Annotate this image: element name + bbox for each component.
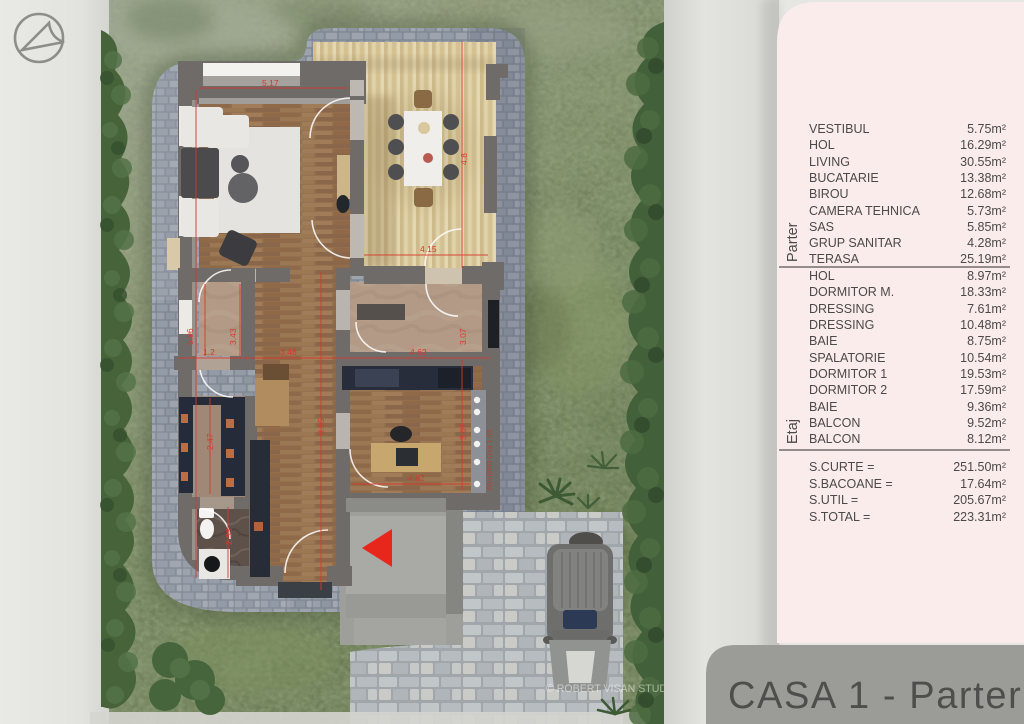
svg-text:5.73m²: 5.73m² [967, 204, 1006, 218]
svg-text:3.07: 3.07 [458, 423, 468, 440]
svg-text:S.TOTAL =: S.TOTAL = [809, 510, 870, 524]
svg-text:DORMITOR 1: DORMITOR 1 [809, 367, 887, 381]
svg-text:S.BACOANE =: S.BACOANE = [809, 477, 893, 491]
svg-text:5.96: 5.96 [185, 328, 195, 345]
svg-text:SPALATORIE: SPALATORIE [809, 351, 885, 365]
svg-text:Parter: Parter [785, 222, 801, 262]
svg-text:Etaj: Etaj [785, 419, 801, 444]
svg-text:19.53m²: 19.53m² [960, 367, 1006, 381]
svg-text:BUCATARIE: BUCATARIE [809, 171, 879, 185]
svg-text:251.50m²: 251.50m² [953, 460, 1006, 474]
svg-text:GRUP SANITAR: GRUP SANITAR [809, 236, 902, 250]
svg-text:RV+0000 O+a 1:99: RV+0000 O+a 1:99 [487, 430, 494, 490]
svg-text:10.54m²: 10.54m² [960, 351, 1006, 365]
svg-text:12.68m²: 12.68m² [960, 187, 1006, 201]
svg-text:4.62: 4.62 [410, 347, 427, 357]
svg-text:17.64m²: 17.64m² [960, 477, 1006, 491]
svg-text:1.2: 1.2 [203, 347, 215, 357]
svg-text:DRESSING: DRESSING [809, 302, 874, 316]
svg-text:S.CURTE =: S.CURTE = [809, 460, 874, 474]
svg-text:LIVING: LIVING [809, 155, 850, 169]
svg-text:5.17: 5.17 [262, 78, 279, 88]
svg-text:BAIE: BAIE [809, 400, 838, 414]
svg-text:205.67m²: 205.67m² [953, 493, 1006, 507]
svg-text:8.75m²: 8.75m² [967, 334, 1006, 348]
svg-text:9.36m²: 9.36m² [967, 400, 1006, 414]
svg-text:VESTIBUL: VESTIBUL [809, 122, 869, 136]
svg-text:DORMITOR 2: DORMITOR 2 [809, 383, 887, 397]
svg-text:3.43: 3.43 [228, 328, 238, 345]
svg-text:30.55m²: 30.55m² [960, 155, 1006, 169]
svg-text:18.33m²: 18.33m² [960, 285, 1006, 299]
svg-text:5.85m²: 5.85m² [967, 220, 1006, 234]
svg-text:2.47: 2.47 [205, 433, 215, 450]
svg-text:3.46: 3.46 [280, 347, 297, 357]
svg-text:4.62: 4.62 [408, 473, 425, 483]
svg-text:17.59m²: 17.59m² [960, 383, 1006, 397]
svg-text:8.12m²: 8.12m² [967, 432, 1006, 446]
svg-text:3.07: 3.07 [458, 328, 468, 345]
svg-text:CAMERA TEHNICA: CAMERA TEHNICA [809, 204, 921, 218]
svg-text:BIROU: BIROU [809, 187, 849, 201]
svg-text:13.38m²: 13.38m² [960, 171, 1006, 185]
svg-text:16.29m²: 16.29m² [960, 138, 1006, 152]
svg-text:223.31m²: 223.31m² [953, 510, 1006, 524]
svg-text:4.15: 4.15 [420, 244, 437, 254]
svg-text:BALCON: BALCON [809, 416, 860, 430]
svg-text:HOL: HOL [809, 138, 835, 152]
svg-text:BAIE: BAIE [809, 334, 838, 348]
svg-text:5.75m²: 5.75m² [967, 122, 1006, 136]
svg-text:SAS: SAS [809, 220, 834, 234]
svg-text:7.61m²: 7.61m² [967, 302, 1006, 316]
svg-text:9.52m²: 9.52m² [967, 416, 1006, 430]
svg-text:DRESSING: DRESSING [809, 318, 874, 332]
svg-text:10.48m²: 10.48m² [960, 318, 1006, 332]
svg-text:4.8: 4.8 [459, 153, 469, 165]
svg-text:2.35: 2.35 [224, 528, 234, 545]
svg-text:S.UTIL =: S.UTIL = [809, 493, 858, 507]
svg-text:BALCON: BALCON [809, 432, 860, 446]
svg-text:TERASA: TERASA [809, 252, 860, 266]
svg-text:CASA 1 - Parter: CASA 1 - Parter [728, 675, 1022, 717]
svg-text:25.19m²: 25.19m² [960, 252, 1006, 266]
svg-text:4.28m²: 4.28m² [967, 236, 1006, 250]
svg-text:DORMITOR M.: DORMITOR M. [809, 285, 894, 299]
svg-text:8.65: 8.65 [316, 418, 326, 435]
svg-text:HOL: HOL [809, 269, 835, 283]
svg-text:8.97m²: 8.97m² [967, 269, 1006, 283]
